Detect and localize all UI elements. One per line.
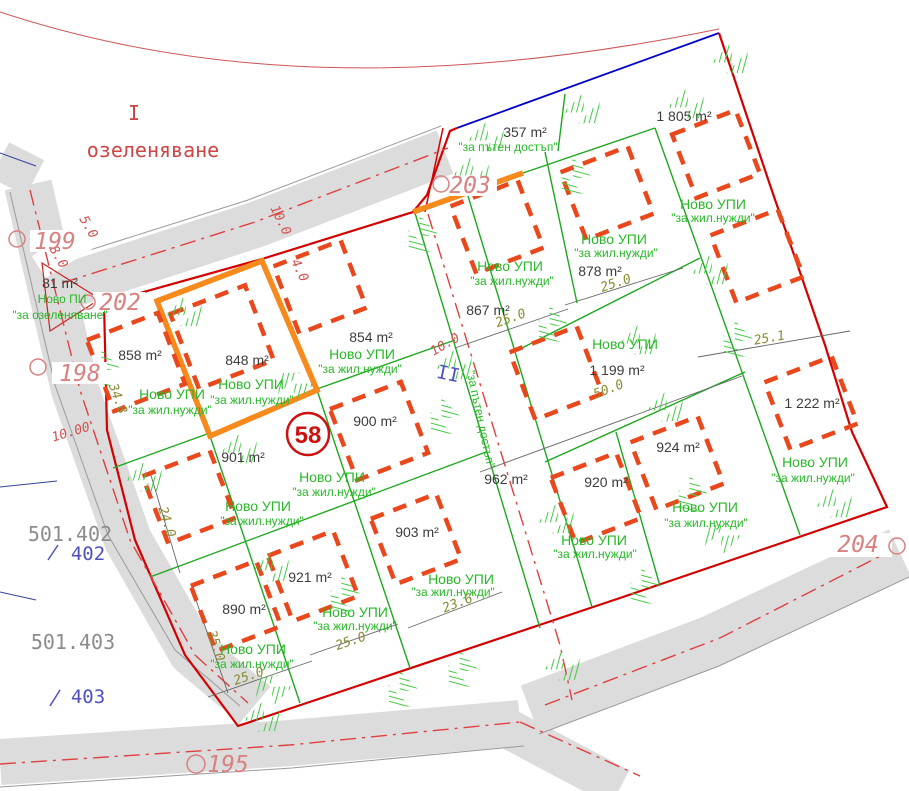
parcel-use: "за жил.нужди" bbox=[470, 274, 554, 288]
zone-use-label: озеленяване bbox=[87, 138, 219, 162]
area-label-920: 920 m² bbox=[584, 474, 628, 490]
cadastral-plan-canvas: I озеленяване II 858 m² 848 m² 854 m² 86… bbox=[0, 0, 909, 791]
parcel-use: "за жил.нужди" bbox=[664, 516, 748, 530]
parcel-title: Ново УПИ bbox=[329, 346, 395, 362]
parcel-use: "за жил.нужди" bbox=[574, 246, 658, 260]
parcel-title: Ново УПИ bbox=[139, 386, 205, 402]
parcel-use: "за жил.нужди" bbox=[771, 471, 855, 485]
zone-numeral: I bbox=[128, 101, 140, 125]
road-bottom bbox=[0, 723, 520, 762]
parcel-use: "за жил.нужди" bbox=[292, 485, 376, 499]
area-label-903: 903 m² bbox=[395, 524, 439, 540]
area-label-921: 921 m² bbox=[288, 569, 332, 585]
area-label-858: 858 m² bbox=[118, 347, 162, 363]
area-label-962: 962 m² bbox=[484, 471, 528, 487]
cadastre-number-403: 403 bbox=[71, 686, 105, 708]
area-label-1222: 1 222 m² bbox=[784, 395, 840, 411]
area-label-848: 848 m² bbox=[225, 352, 269, 368]
parcel-number-58: 58 bbox=[295, 422, 322, 449]
parcel-use: "за жил.нужди" bbox=[220, 514, 304, 528]
dimension-label: 25.1 bbox=[753, 328, 786, 348]
cadastre-number-402: 402 bbox=[71, 543, 105, 565]
area-label-890: 890 m² bbox=[222, 601, 266, 617]
point-label-204: 204 bbox=[837, 532, 879, 558]
parcel-title: Ново УПИ bbox=[782, 454, 848, 470]
parcel-title: Ново УПИ bbox=[218, 376, 284, 392]
point-label-203: 203 bbox=[449, 173, 491, 199]
parcel-use: "за жил.нужди" bbox=[128, 403, 212, 417]
area-label-1199: 1 199 m² bbox=[589, 362, 645, 378]
parcel-use: "за жил.нужди" bbox=[210, 393, 294, 407]
area-label-901: 901 m² bbox=[221, 449, 265, 465]
parcel-use-green: "за озеленяване" bbox=[12, 308, 107, 322]
dimension-label-red: 4.0 bbox=[287, 257, 311, 285]
parcel-use: "за жил.нужди" bbox=[671, 211, 755, 225]
area-label-81: 81 m² bbox=[42, 275, 78, 291]
parcel-title: Ново УПИ bbox=[561, 532, 627, 548]
parcel-use-road-access: "за пътен достъп" bbox=[458, 140, 557, 154]
point-label-199: 199 bbox=[34, 229, 76, 255]
parcel-title: Ново УПИ bbox=[322, 604, 388, 620]
road-204 bbox=[530, 553, 900, 710]
parcel-use: "за жил.нужди" bbox=[553, 547, 637, 561]
area-label-900: 900 m² bbox=[353, 413, 397, 429]
road-parcel-numeral: II bbox=[435, 361, 462, 387]
parcel-title: Ново УПИ bbox=[220, 641, 286, 657]
area-label-357: 357 m² bbox=[503, 124, 547, 140]
area-label-924: 924 m² bbox=[656, 439, 700, 455]
parcel-title: Ново УПИ bbox=[680, 196, 746, 212]
parcel-title: Ново УПИ bbox=[672, 499, 738, 515]
parcel-title: Ново УПИ bbox=[592, 336, 658, 352]
existing-terrain-line bbox=[0, 12, 719, 68]
dimension-label: 24.0 bbox=[155, 505, 179, 539]
area-label-854: 854 m² bbox=[349, 329, 393, 345]
parcel-title: Ново УПИ bbox=[225, 498, 291, 514]
building-footprint bbox=[330, 382, 428, 480]
point-label-198: 198 bbox=[59, 361, 101, 387]
parcel-use: "за жил.нужди" bbox=[318, 362, 402, 376]
parcel-title: Ново УПИ bbox=[581, 231, 647, 247]
road-top-left-arm bbox=[0, 160, 35, 178]
dimension-label: 25.0 bbox=[334, 629, 369, 653]
parcel-use: "за жил.нужди" bbox=[313, 619, 397, 633]
roads bbox=[0, 152, 900, 788]
road-bottom-branch bbox=[505, 727, 620, 788]
parcel-title-pi: Ново ПИ bbox=[38, 292, 87, 306]
point-label-202: 202 bbox=[99, 290, 141, 316]
point-label-195: 195 bbox=[207, 752, 249, 778]
parcel-title: Ново УПИ bbox=[477, 258, 543, 274]
cadastre-number-501403: 501.403 bbox=[31, 630, 115, 654]
building-footprint bbox=[630, 416, 723, 509]
parcel-title: Ново УПИ bbox=[299, 469, 365, 485]
area-label-1805: 1 805 m² bbox=[656, 108, 712, 124]
